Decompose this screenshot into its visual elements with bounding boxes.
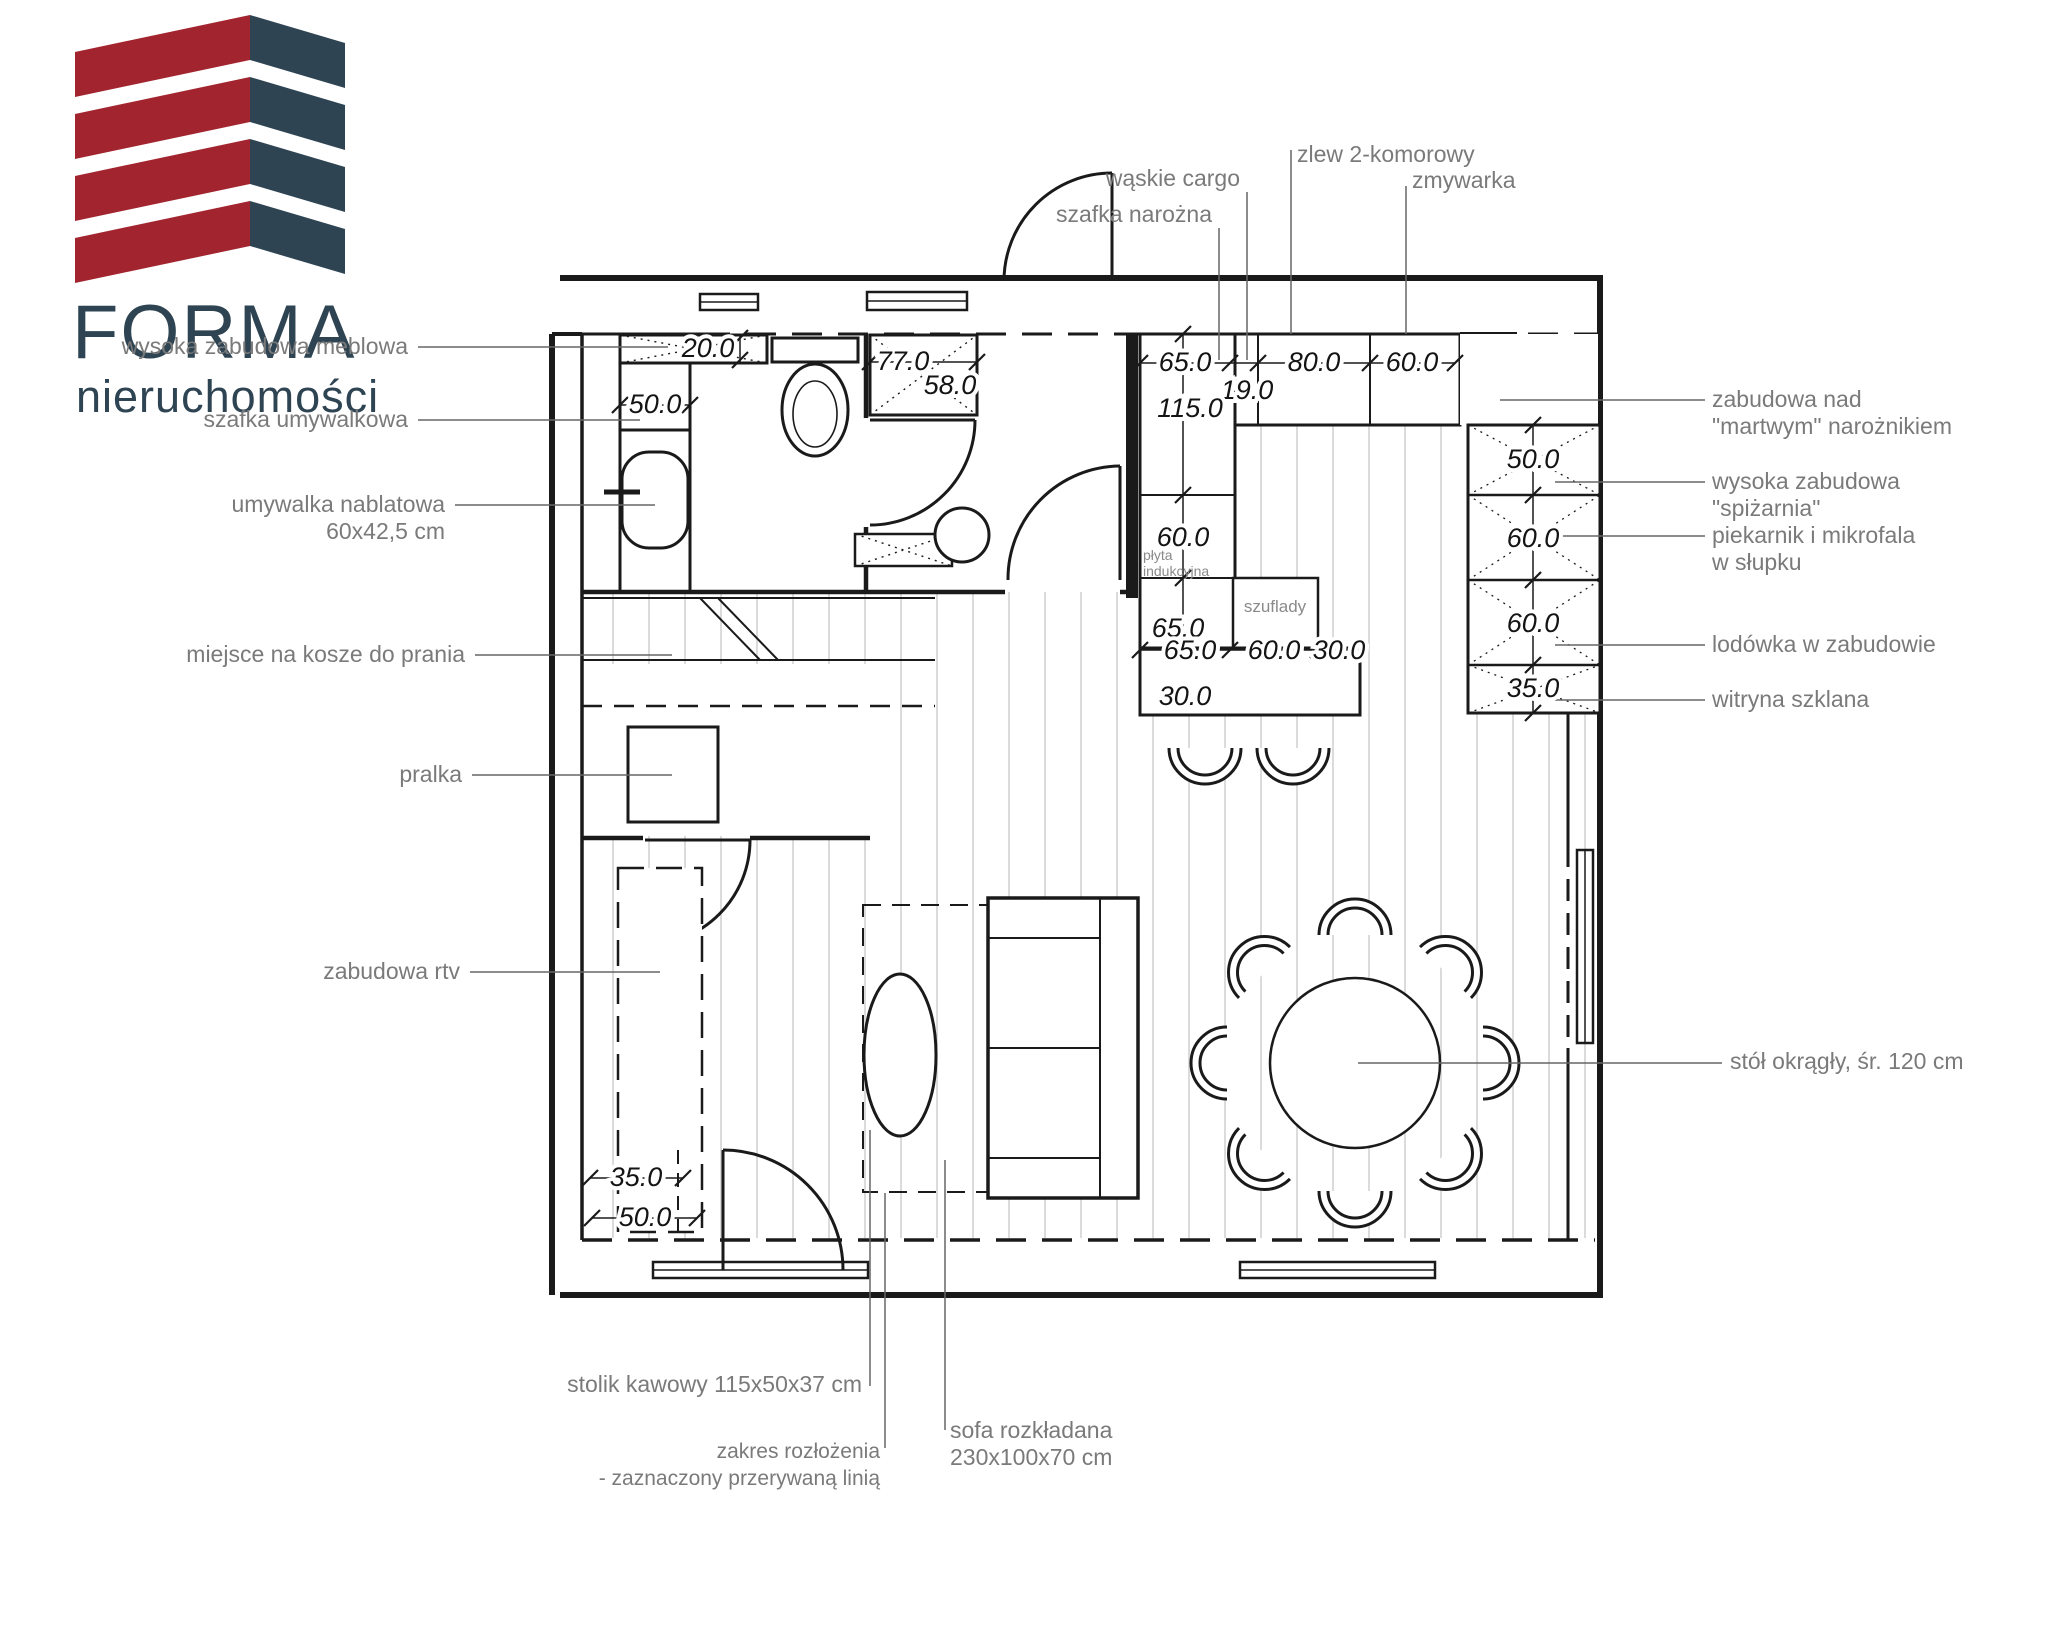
dim-left-115: 115.0 — [1157, 393, 1223, 423]
label-zmywarka: zmywarka — [1412, 167, 1516, 193]
dim-right-60b: 60.0 — [1507, 608, 1560, 638]
dim-top-80: 80.0 — [1288, 347, 1341, 377]
label-pralka: pralka — [399, 761, 462, 787]
logo-building-icon — [75, 15, 345, 283]
dim-bath-alcove: 50.0 — [629, 389, 682, 419]
label-wysoka-zabudowa-2: "spiżarnia" — [1712, 495, 1820, 521]
wc-round-sink — [935, 508, 989, 562]
dim-island-30: 30.0 — [1313, 635, 1366, 665]
label-umywalka-size: 60x42,5 cm — [326, 518, 445, 544]
forma-logo: FORMA nieruchomości — [72, 15, 379, 422]
label-umywalka-nablatowa: umywalka nablatowa — [231, 491, 445, 517]
dim-wardrobe-width: 77.0 — [877, 346, 930, 376]
dim-island-overhang: 30.0 — [1159, 681, 1212, 711]
toilet — [772, 338, 858, 456]
label-piekarnik-2: w słupku — [1711, 549, 1801, 575]
label-witryna: witryna szklana — [1711, 686, 1869, 712]
dim-balcony-35: 35.0 — [610, 1162, 663, 1192]
label-plyta-1: płyta — [1143, 547, 1173, 563]
label-szafka-umywalkowa: szafka umywalkowa — [203, 406, 408, 432]
label-piekarnik-1: piekarnik i mikrofala — [1712, 522, 1915, 548]
dim-right-50: 50.0 — [1507, 444, 1560, 474]
dim-island-65: 65.0 — [1164, 635, 1217, 665]
floor-plan-drawing: FORMA nieruchomości — [0, 0, 2048, 1633]
floor-plan-page: FORMA nieruchomości — [0, 0, 2048, 1633]
label-waskie-cargo: wąskie cargo — [1105, 165, 1240, 191]
countertop-washbasin — [604, 452, 688, 548]
dim-island-60: 60.0 — [1248, 635, 1301, 665]
window-top-small — [700, 294, 758, 310]
label-miejsce-na-kosze: miejsce na kosze do prania — [186, 641, 465, 667]
label-sofa-2: 230x100x70 cm — [950, 1444, 1112, 1470]
window-top-wide — [867, 292, 967, 310]
entrance-door — [1004, 173, 1112, 281]
dim-bath-cabinet: 20.0 — [681, 333, 735, 363]
label-stol-okragly: stół okrągły, śr. 120 cm — [1730, 1048, 1964, 1074]
label-wysoka-zabudowa-1: wysoka zabudowa — [1711, 468, 1900, 494]
label-zakres-1: zakres rozłożenia — [717, 1440, 881, 1463]
dim-balcony-50: 50.0 — [619, 1202, 672, 1232]
label-szuflady: szuflady — [1244, 597, 1307, 616]
label-zabudowa-rtv: zabudowa rtv — [323, 958, 460, 984]
wc-door — [1008, 466, 1120, 580]
label-stolik-kawowy: stolik kawowy 115x50x37 cm — [567, 1371, 862, 1397]
label-zakres-2: - zaznaczony przerywaną linią — [599, 1467, 881, 1490]
dim-top-65: 65.0 — [1159, 347, 1212, 377]
dim-top-19: 19.0 — [1221, 375, 1274, 405]
label-sofa-1: sofa rozkładana — [950, 1417, 1113, 1443]
label-zabudowa-nad-2: "martwym" narożnikiem — [1712, 413, 1952, 439]
label-zlew: zlew 2-komorowy — [1297, 141, 1475, 167]
coffee-table — [864, 974, 936, 1136]
label-plyta-2: indukcyjna — [1143, 563, 1209, 579]
dim-wardrobe-depth: 58.0 — [924, 370, 977, 400]
dim-right-35: 35.0 — [1507, 673, 1560, 703]
dim-top-60: 60.0 — [1386, 347, 1439, 377]
label-zabudowa-nad-1: zabudowa nad — [1712, 386, 1862, 412]
window-bottom-left — [653, 1262, 868, 1278]
label-lodowka: lodówka w zabudowie — [1712, 631, 1936, 657]
window-bottom-right — [1240, 1262, 1435, 1278]
label-szafka-narozna: szafka narożna — [1056, 201, 1212, 227]
dim-right-60a: 60.0 — [1507, 523, 1560, 553]
label-wysoka-zabudowa-meblowa: wysoka zabudowa meblowa — [121, 333, 409, 359]
